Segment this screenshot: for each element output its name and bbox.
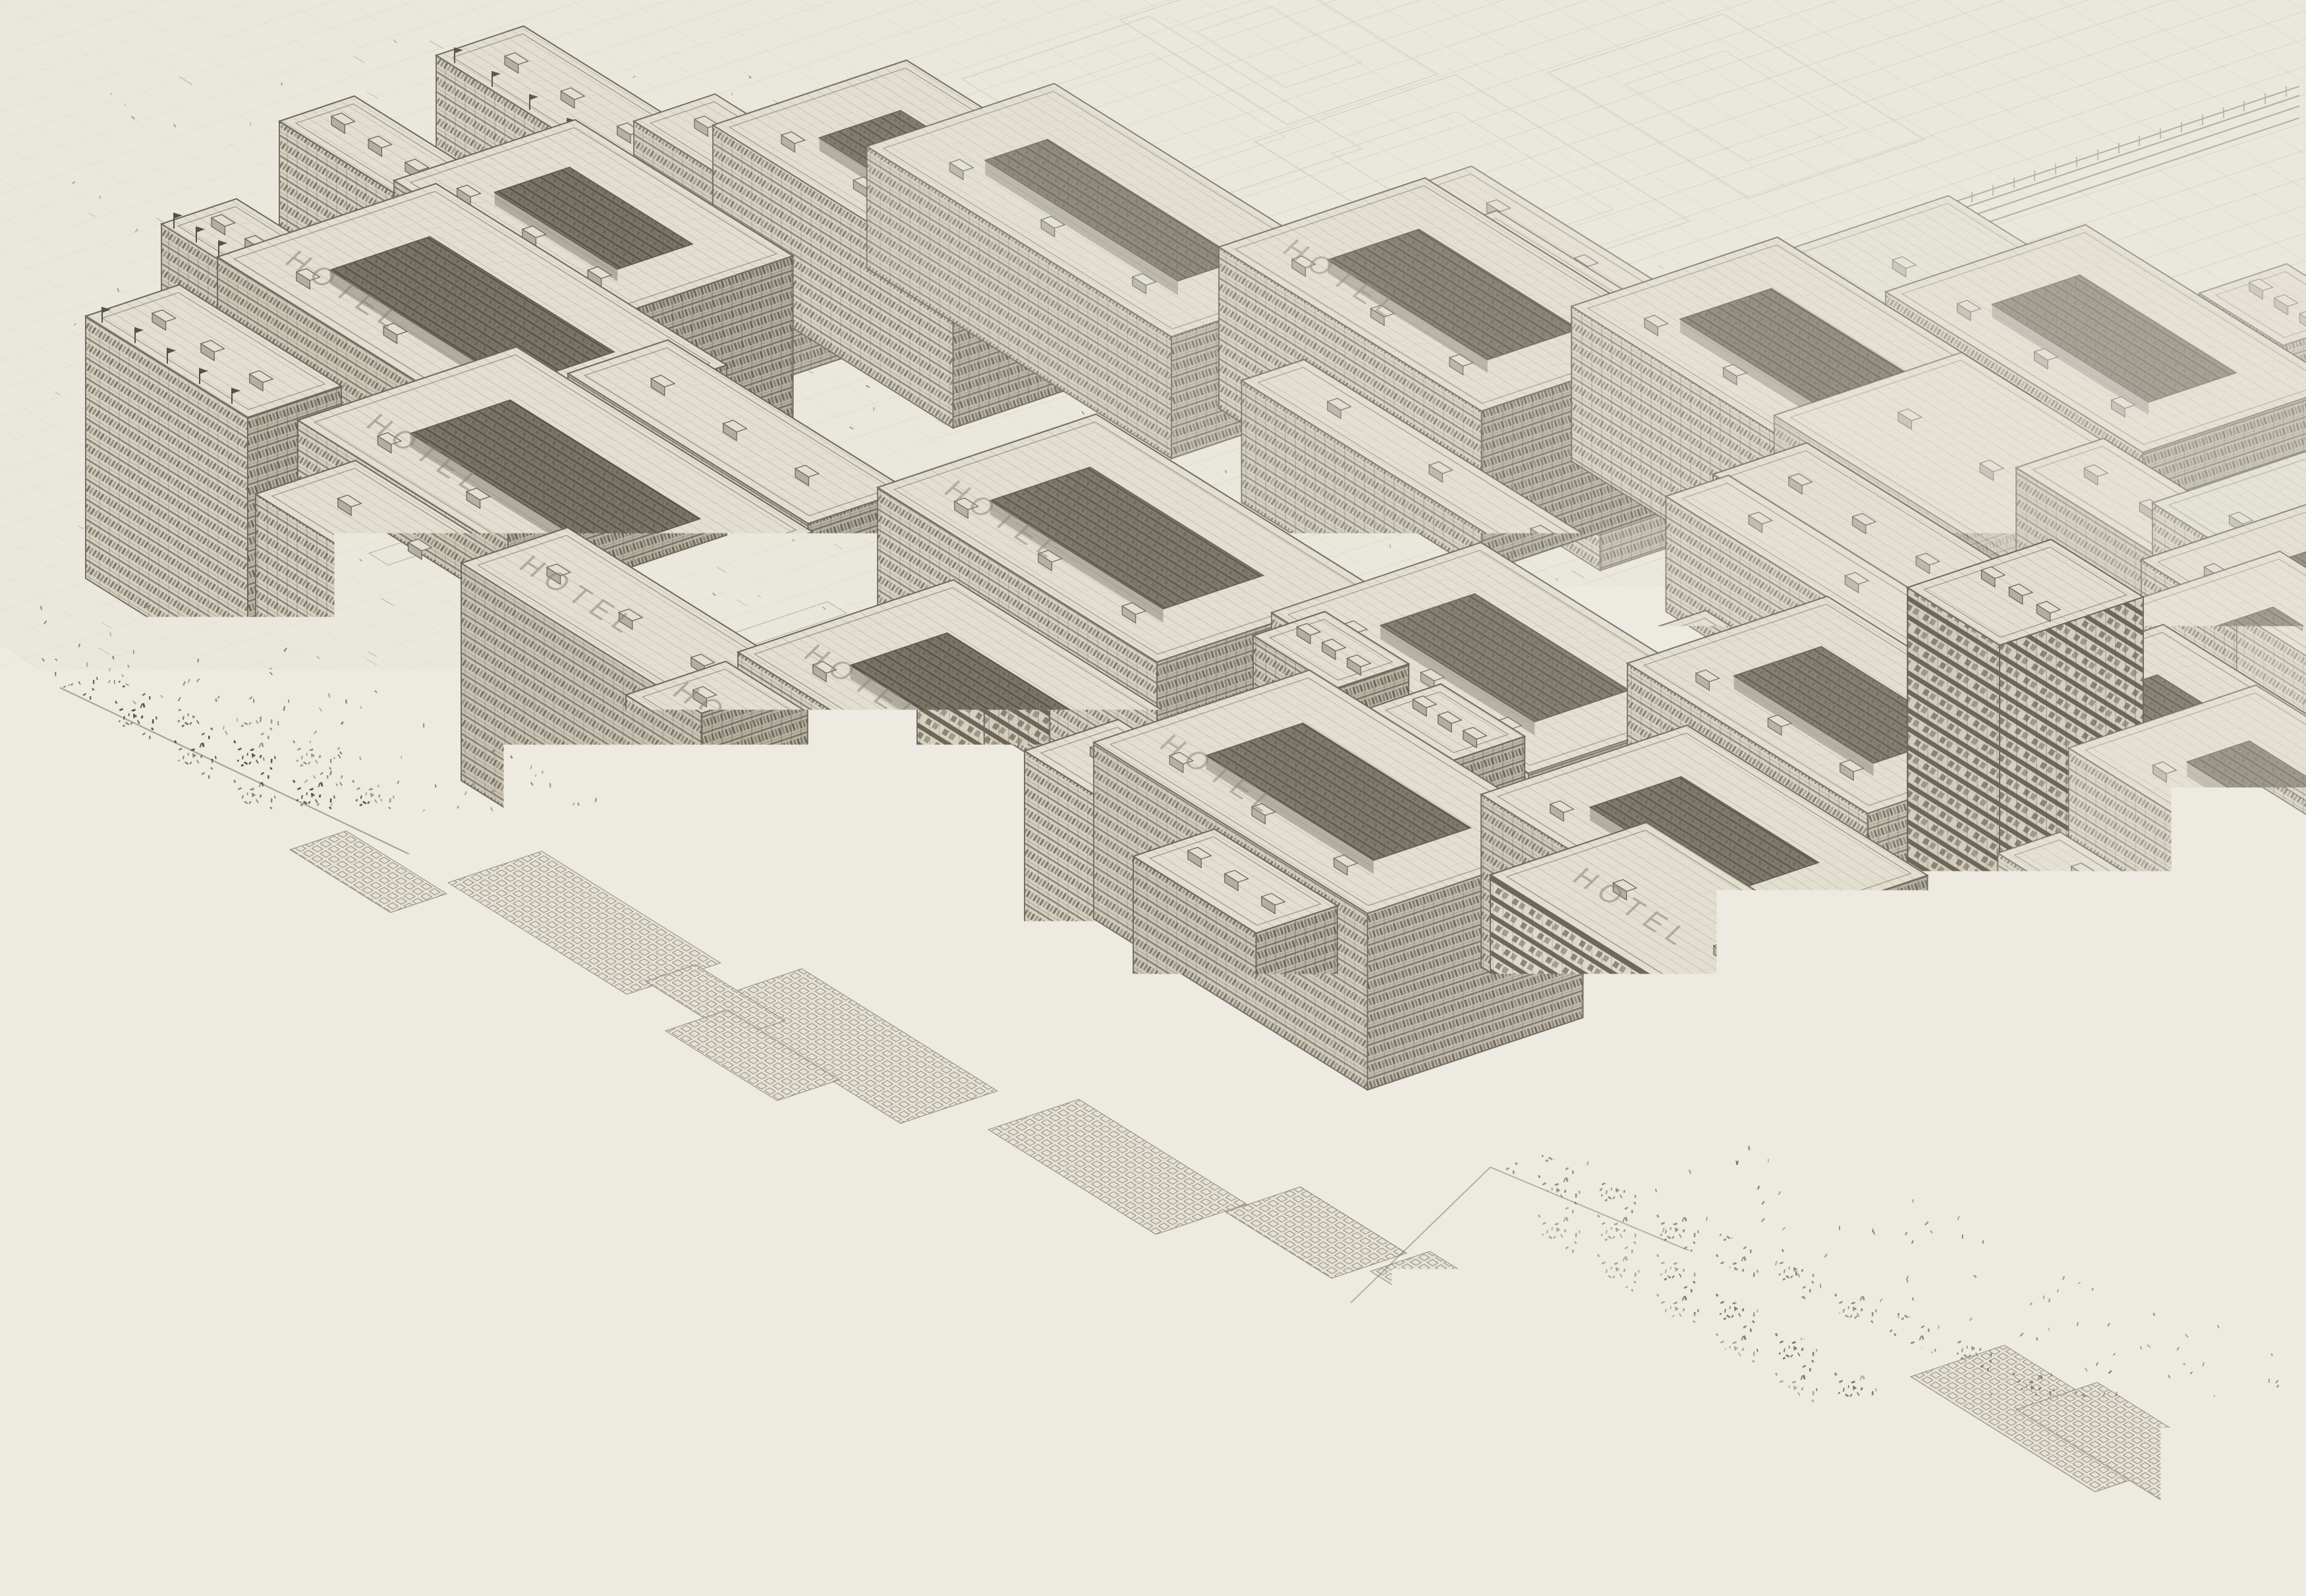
svg-text:Bay '77: Bay '77 (1571, 1549, 1629, 1570)
